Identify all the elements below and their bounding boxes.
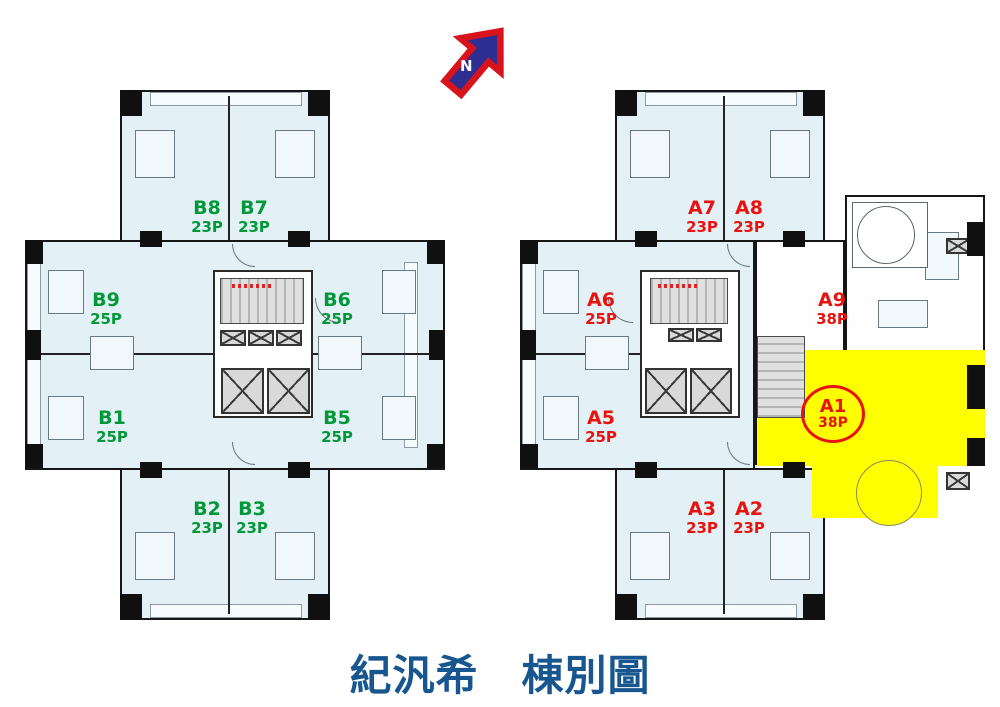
balcony xyxy=(645,604,797,618)
shaft-box xyxy=(276,330,302,346)
wall-pier xyxy=(140,462,162,478)
bathroom-block xyxy=(770,532,810,580)
wall-pier xyxy=(427,240,445,264)
unit-size: 25P xyxy=(84,429,140,445)
bathroom-block xyxy=(585,336,629,370)
unit-id: A6 xyxy=(573,290,629,311)
a9-round-balcony xyxy=(857,206,915,264)
wall-pier xyxy=(520,444,538,468)
wall-pier xyxy=(615,594,637,620)
wall-pier xyxy=(308,594,330,620)
wall-pier xyxy=(615,90,637,116)
unit-label-b9: B9 25P xyxy=(78,290,134,327)
unit-size: 38P xyxy=(818,416,848,430)
unit-divider-wall xyxy=(228,470,230,614)
balcony xyxy=(645,92,797,106)
unit-id: B5 xyxy=(309,408,365,429)
unit-label-a2: A2 23P xyxy=(721,499,777,536)
wall-pier xyxy=(120,90,142,116)
page-title: 紀汎希 棟別圖 xyxy=(0,642,1000,703)
unit-size: 25P xyxy=(573,311,629,327)
unit-label-b5: B5 25P xyxy=(309,408,365,445)
north-arrow: N xyxy=(433,20,515,102)
wall-pier xyxy=(25,330,41,360)
unit-size: 23P xyxy=(226,219,282,235)
unit-size: 23P xyxy=(721,520,777,536)
unit-id: A9 xyxy=(804,290,860,311)
unit-label-b7: B7 23P xyxy=(226,198,282,235)
unit-label-b6: B6 25P xyxy=(309,290,365,327)
wall-pier xyxy=(635,231,657,247)
unit-divider-wall xyxy=(723,470,725,614)
unit-size: 25P xyxy=(573,429,629,445)
floor-plan-canvas: N xyxy=(0,0,1000,707)
wall-pier xyxy=(288,462,310,478)
unit-size: 23P xyxy=(224,520,280,536)
a-elevator xyxy=(690,368,732,414)
wall-pier xyxy=(429,330,445,360)
bathroom-block xyxy=(318,336,362,370)
bathroom-block xyxy=(90,336,134,370)
wall-pier xyxy=(967,222,985,256)
unit-size: 23P xyxy=(721,219,777,235)
a-stairs-2 xyxy=(757,336,805,418)
wall-pier xyxy=(140,231,162,247)
unit-id: A8 xyxy=(721,198,777,219)
unit-label-a8: A8 23P xyxy=(721,198,777,235)
b-elevator xyxy=(221,368,264,414)
unit-size: 25P xyxy=(309,429,365,445)
unit-label-a5: A5 25P xyxy=(573,408,629,445)
bathroom-block xyxy=(770,130,810,178)
shaft-box xyxy=(696,328,722,342)
bathroom-block xyxy=(630,130,670,178)
bathroom-block xyxy=(48,396,84,440)
unit-id: B9 xyxy=(78,290,134,311)
bathroom-block xyxy=(878,300,928,328)
unit-id: A5 xyxy=(573,408,629,429)
wall-pier xyxy=(520,330,536,360)
wall-pier xyxy=(427,444,445,468)
wall-pier xyxy=(635,462,657,478)
wall-pier xyxy=(967,438,985,466)
bathroom-block xyxy=(275,532,315,580)
wall-pier xyxy=(520,240,538,264)
wall-pier xyxy=(803,594,825,620)
a-elevator xyxy=(645,368,687,414)
north-label: N xyxy=(460,57,473,75)
shaft-box xyxy=(220,330,246,346)
wall-pier xyxy=(120,594,142,620)
unit-id: B3 xyxy=(224,499,280,520)
north-arrow-icon xyxy=(433,20,515,102)
bathroom-block xyxy=(630,532,670,580)
shaft-box xyxy=(668,328,694,342)
unit-id: B7 xyxy=(226,198,282,219)
unit-id: A2 xyxy=(721,499,777,520)
unit-id: B6 xyxy=(309,290,365,311)
unit-label-a1-circled: A1 38P xyxy=(801,385,865,443)
wall-pier xyxy=(308,90,330,116)
wall-pier xyxy=(25,240,43,264)
bathroom-block xyxy=(275,130,315,178)
unit-size: 25P xyxy=(78,311,134,327)
unit-label-a6: A6 25P xyxy=(573,290,629,327)
b-elevator xyxy=(267,368,310,414)
unit-size: 38P xyxy=(804,311,860,327)
shaft-box xyxy=(248,330,274,346)
wall-pier xyxy=(288,231,310,247)
unit-size: 25P xyxy=(309,311,365,327)
bathroom-block xyxy=(382,396,416,440)
wall-pier xyxy=(25,444,43,468)
bathroom-block xyxy=(135,130,175,178)
unit-label-b3: B3 23P xyxy=(224,499,280,536)
wall-pier xyxy=(783,462,805,478)
unit-id: A1 xyxy=(820,398,846,416)
unit-label-a9: A9 38P xyxy=(804,290,860,327)
stair-annotation-marks xyxy=(232,284,274,288)
bathroom-block xyxy=(382,270,416,314)
balcony xyxy=(150,604,302,618)
balcony xyxy=(150,92,302,106)
wall-pier xyxy=(783,231,805,247)
shaft-box xyxy=(946,472,970,490)
wall-pier xyxy=(803,90,825,116)
unit-label-b1: B1 25P xyxy=(84,408,140,445)
bathroom-block xyxy=(135,532,175,580)
wall-pier xyxy=(967,365,985,409)
a1-round-balcony xyxy=(856,460,922,526)
unit-id: B1 xyxy=(84,408,140,429)
stair-annotation-marks xyxy=(658,284,700,288)
